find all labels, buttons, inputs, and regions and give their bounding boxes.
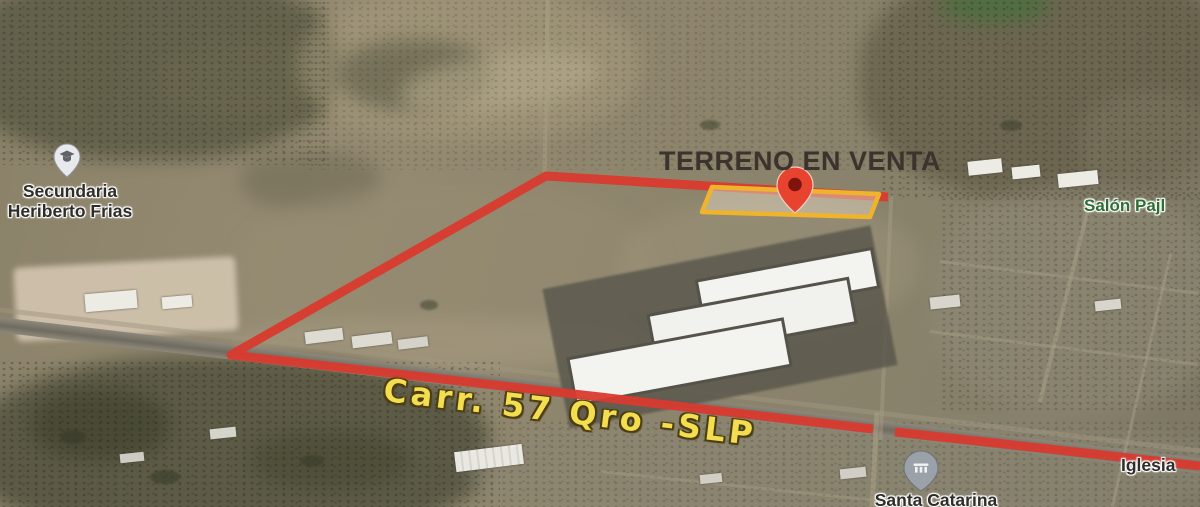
poi-label-santa-catarina[interactable]: Santa Catarina [836, 490, 1036, 507]
poi-label-school[interactable]: Secundaria Heriberto Frias [0, 181, 158, 221]
church-pin-icon[interactable] [904, 451, 938, 491]
poi-school-line1: Secundaria [0, 181, 158, 201]
poi-label-iglesia[interactable]: Iglesia [1121, 455, 1175, 476]
for-sale-title: TERRENO EN VENTA [659, 146, 941, 177]
poi-school-line2: Heriberto Frias [0, 201, 158, 221]
poi-label-salon[interactable]: Salón Pajl [1084, 196, 1165, 216]
map-canvas[interactable]: TERRENO EN VENTA Carr. 57 Qro -SLP Secun… [0, 0, 1200, 507]
school-pin-icon[interactable] [54, 144, 80, 177]
